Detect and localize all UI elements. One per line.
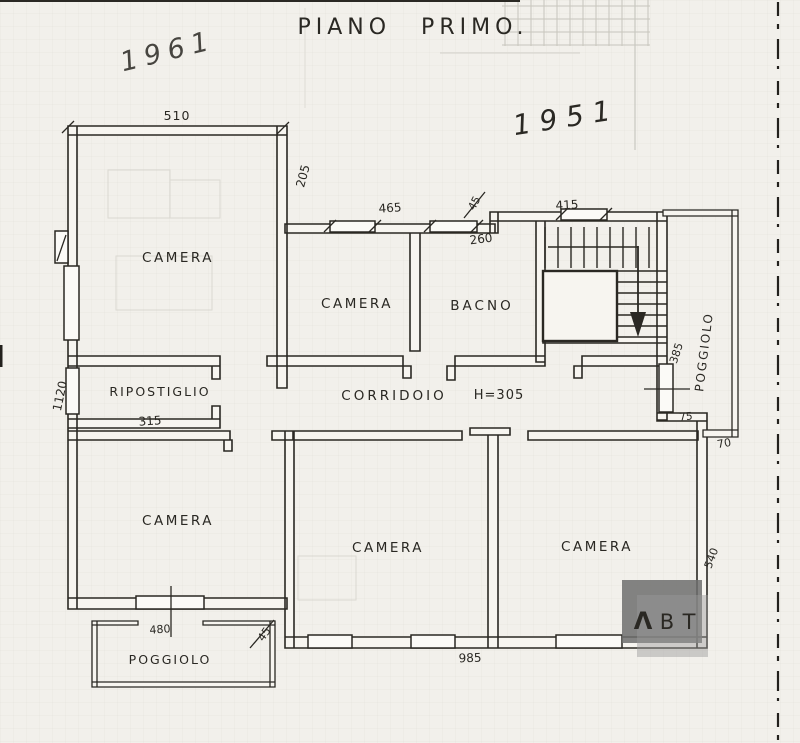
room-label-camera-sw: CAMERA [142, 513, 214, 529]
room-label-camera-mid: CAMERA [321, 296, 393, 312]
dimension-510: 510 [164, 108, 191, 123]
stair-landing [543, 271, 617, 341]
floorplan-drawing: PIANO PRIMO. 1961 1951 CAMERA CAMERA BAC… [0, 0, 800, 743]
abt-logo-caret-icon: Λ [634, 607, 653, 635]
scanned-floorplan-page: PIANO PRIMO. 1961 1951 CAMERA CAMERA BAC… [0, 0, 800, 743]
room-label-camera-se: CAMERA [561, 539, 633, 555]
dimension-985: 985 [458, 651, 481, 666]
dimension-260: 260 [469, 231, 493, 248]
room-label-camera-s: CAMERA [352, 540, 424, 556]
room-label-poggiolo-sw: POGGIOLO [129, 652, 212, 667]
abt-logo-letter-t: T [682, 610, 696, 634]
room-label-bagno: BACNO [450, 298, 513, 314]
dimension-415: 415 [555, 197, 579, 212]
dimension-70: 70 [716, 436, 732, 451]
room-label-camera-nw: CAMERA [142, 250, 214, 266]
page-title: PIANO PRIMO. [297, 15, 528, 40]
room-label-corridoio: CORRIDOIO [341, 388, 446, 404]
dimension-75: 75 [679, 410, 694, 423]
room-label-ripostiglio: RIPOSTIGLIO [109, 384, 210, 399]
dimension-465: 465 [378, 200, 402, 216]
dimension-315: 315 [138, 413, 162, 429]
abt-logo-letter-b: B [660, 610, 674, 634]
dimension-480: 480 [149, 622, 171, 636]
dimension-h305: H=305 [474, 388, 524, 403]
